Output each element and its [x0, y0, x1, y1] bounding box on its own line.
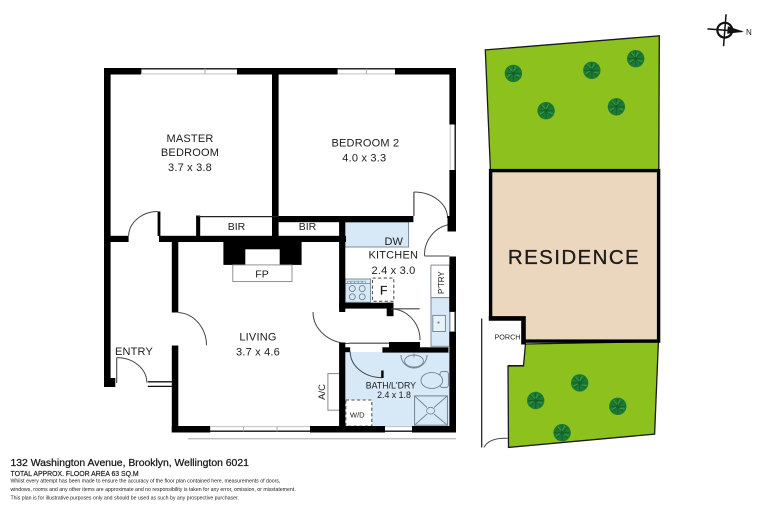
svg-text:RESIDENCE: RESIDENCE	[508, 246, 640, 269]
svg-text:FP: FP	[255, 269, 268, 281]
svg-text:BIR: BIR	[299, 221, 317, 233]
svg-text:PORCH: PORCH	[495, 332, 521, 341]
svg-text:P'TRY: P'TRY	[437, 271, 446, 294]
svg-text:132 Washington Avenue, Brookly: 132 Washington Avenue, Brooklyn, Welling…	[11, 458, 250, 469]
svg-text:N: N	[746, 28, 752, 37]
svg-text:TOTAL APPROX. FLOOR AREA 63 SQ: TOTAL APPROX. FLOOR AREA 63 SQ.M	[11, 471, 139, 478]
svg-text:DW: DW	[385, 236, 404, 248]
svg-text:A/C: A/C	[317, 384, 328, 400]
svg-text:MASTER: MASTER	[166, 133, 213, 145]
svg-text:windows, rooms and any other i: windows, rooms and any other items are a…	[11, 487, 296, 493]
svg-text:4.0 x 3.3: 4.0 x 3.3	[342, 153, 386, 165]
svg-text:Whilst every attempt has been: Whilst every attempt has been made to en…	[11, 478, 281, 484]
svg-text:BEDROOM 2: BEDROOM 2	[331, 138, 399, 150]
svg-text:3.7 x 3.8: 3.7 x 3.8	[168, 162, 212, 174]
svg-text:3.7 x 4.6: 3.7 x 4.6	[236, 347, 280, 359]
svg-text:BIR: BIR	[228, 221, 246, 233]
svg-text:LIVING: LIVING	[239, 331, 276, 343]
svg-text:W/D: W/D	[350, 411, 365, 420]
svg-text:KITCHEN: KITCHEN	[368, 250, 418, 262]
svg-text:BEDROOM: BEDROOM	[161, 147, 219, 159]
svg-text:2.4 x 1.8: 2.4 x 1.8	[377, 390, 411, 400]
svg-text:2.4 x 3.0: 2.4 x 3.0	[372, 265, 416, 277]
svg-text:This plan is for illustrative: This plan is for illustrative purposes o…	[11, 495, 239, 501]
svg-text:F: F	[380, 283, 387, 297]
svg-text:ENTRY: ENTRY	[115, 346, 154, 358]
